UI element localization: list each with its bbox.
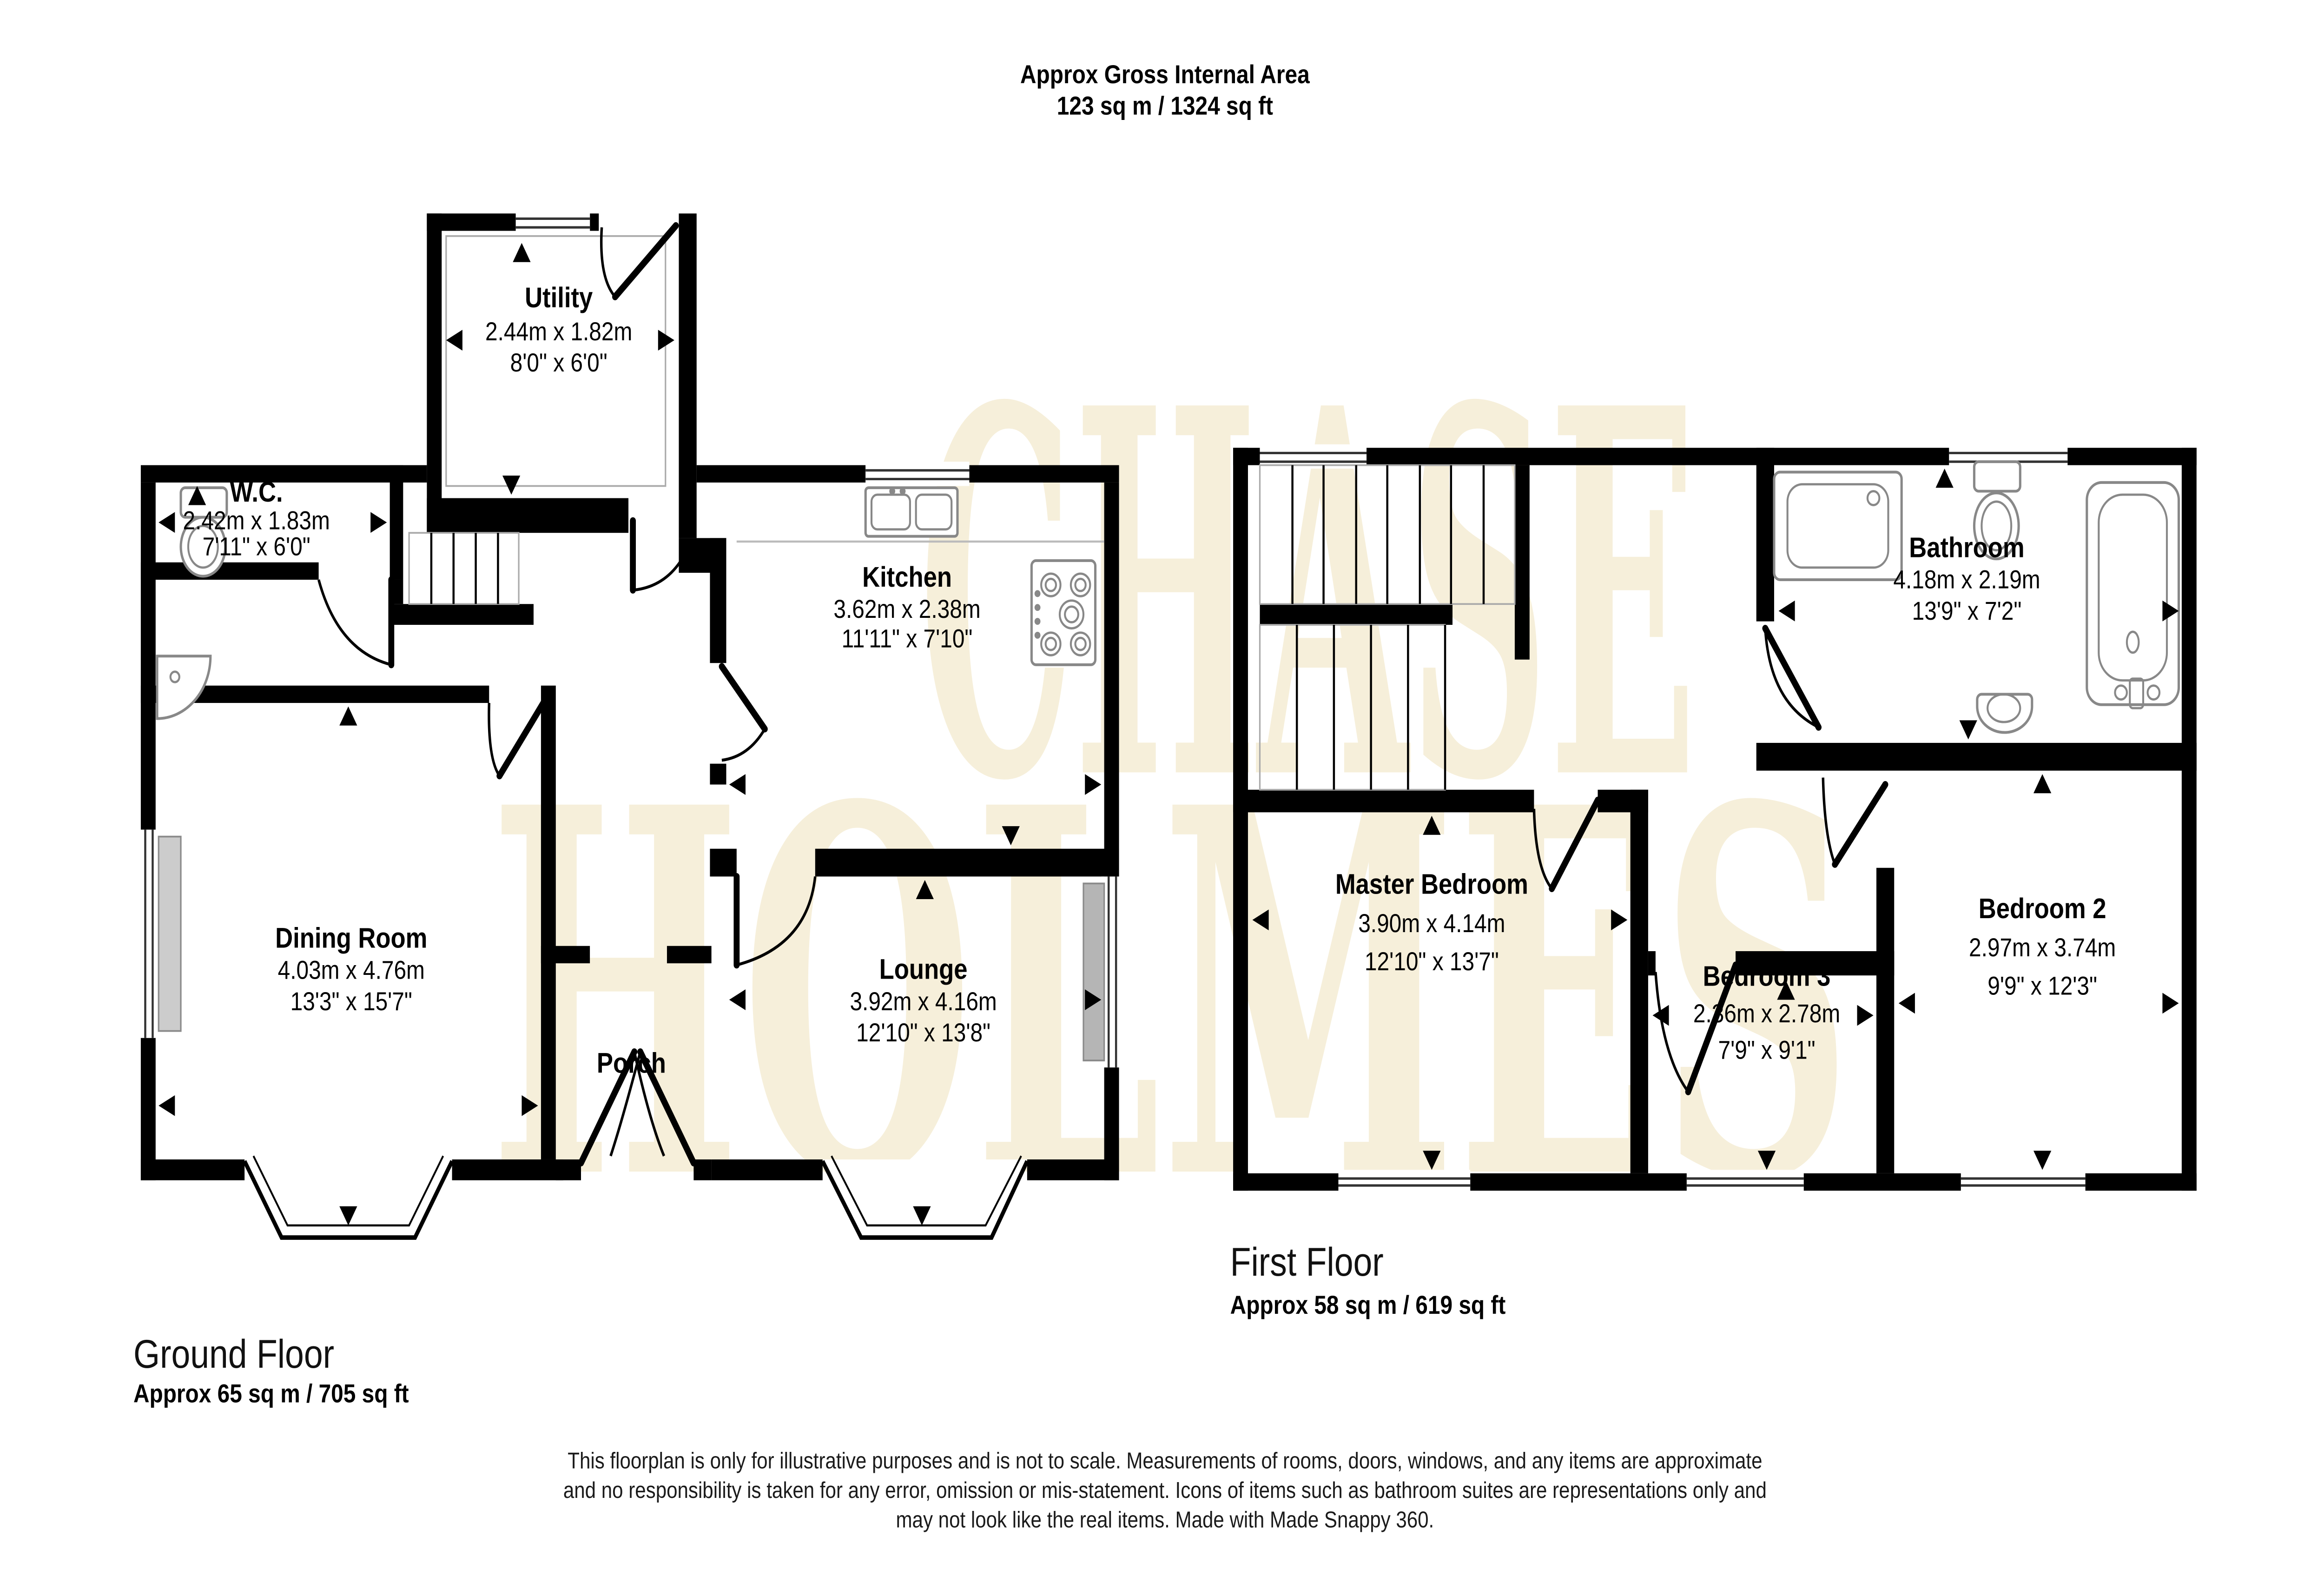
title: Approx Gross Internal Area 123 sq m / 13… [1020,60,1310,121]
room-dim-utility-imperial: 8'0" x 6'0" [510,348,607,377]
bay-window-lounge [823,1156,1027,1237]
room-label-utility: Utility [525,282,593,314]
stairs-ground-floor [409,533,519,604]
ground-floor-area: Approx 65 sq m / 705 sq ft [133,1379,409,1408]
floorplan-page: CHASE HOLMES Approx Gross Internal Area … [0,0,2324,1576]
basin-icon [1977,694,2032,732]
room-dim-bedroom2-metric: 2.97m x 3.74m [1969,934,2116,962]
room-label-kitchen: Kitchen [862,561,952,593]
corner-basin-icon [157,656,211,718]
room-label-master: Master Bedroom [1335,868,1528,901]
room-dim-lounge-metric: 3.92m x 4.16m [850,987,997,1016]
radiator-dining [158,837,181,1031]
disclaimer-line3: may not look like the real items. Made w… [896,1507,1434,1532]
kitchen-sink-icon [865,488,957,536]
room-dim-bathroom-imperial: 13'9" x 7'2" [1912,596,2022,625]
room-label-porch: Porch [597,1047,666,1079]
room-label-dining: Dining Room [275,922,427,954]
room-label-bedroom2: Bedroom 2 [1979,893,2106,925]
room-dim-bedroom3-imperial: 7'9" x 9'1" [1718,1036,1815,1065]
window-master [1338,1170,1470,1194]
disclaimer-line2: and no responsibility is taken for any e… [563,1477,1767,1503]
disclaimer-line1: This floorplan is only for illustrative … [568,1448,1762,1473]
room-dim-kitchen-metric: 3.62m x 2.38m [833,595,980,624]
room-dim-bedroom3-metric: 2.36m x 2.78m [1693,1000,1840,1028]
title-line2: 123 sq m / 1324 sq ft [1057,92,1273,120]
room-dim-bedroom2-imperial: 9'9" x 12'3" [1987,972,2097,1000]
room-dim-wc-imperial: 7'11" x 6'0" [203,532,310,561]
window-bedroom3 [1687,1170,1804,1194]
ground-floor-title: Ground Floor [133,1332,334,1377]
window-bedroom2 [1961,1170,2086,1194]
room-dim-wc-metric: 2.42m x 1.83m [183,506,330,535]
room-dim-lounge-imperial: 12'10" x 13'8" [856,1019,990,1047]
radiator-lounge [1083,883,1104,1060]
room-dim-master-metric: 3.90m x 4.14m [1358,909,1505,938]
window-utility [516,210,590,234]
room-label-lounge: Lounge [879,954,968,986]
first-floor-area: Approx 58 sq m / 619 sq ft [1230,1291,1506,1320]
room-dim-dining-metric: 4.03m x 4.76m [278,956,425,985]
room-dim-bathroom-metric: 4.18m x 2.19m [1893,565,2040,594]
first-floor-title: First Floor [1230,1240,1384,1285]
hob-icon [1031,561,1095,665]
room-label-bathroom: Bathroom [1909,532,2024,564]
room-label-wc: W.C. [230,476,283,508]
room-dim-utility-metric: 2.44m x 1.82m [485,317,632,346]
door-wc [319,580,391,665]
floorplan-canvas: CHASE HOLMES Approx Gross Internal Area … [0,0,2324,1576]
bathtub-icon [2087,483,2179,708]
window-kitchen [865,462,969,486]
ground-floor-caption: Ground Floor Approx 65 sq m / 705 sq ft [133,1332,409,1409]
title-line1: Approx Gross Internal Area [1020,60,1310,89]
window-dining-side [138,830,159,1038]
room-dim-dining-imperial: 13'3" x 15'7" [290,987,412,1016]
room-label-bedroom3: Bedroom 3 [1703,960,1831,993]
shower-tray-icon [1774,472,1901,580]
room-dim-master-imperial: 12'10" x 13'7" [1365,947,1499,976]
footer-disclaimer: This floorplan is only for illustrative … [563,1448,1767,1532]
room-dim-kitchen-imperial: 11'11" x 7'10" [842,624,973,653]
